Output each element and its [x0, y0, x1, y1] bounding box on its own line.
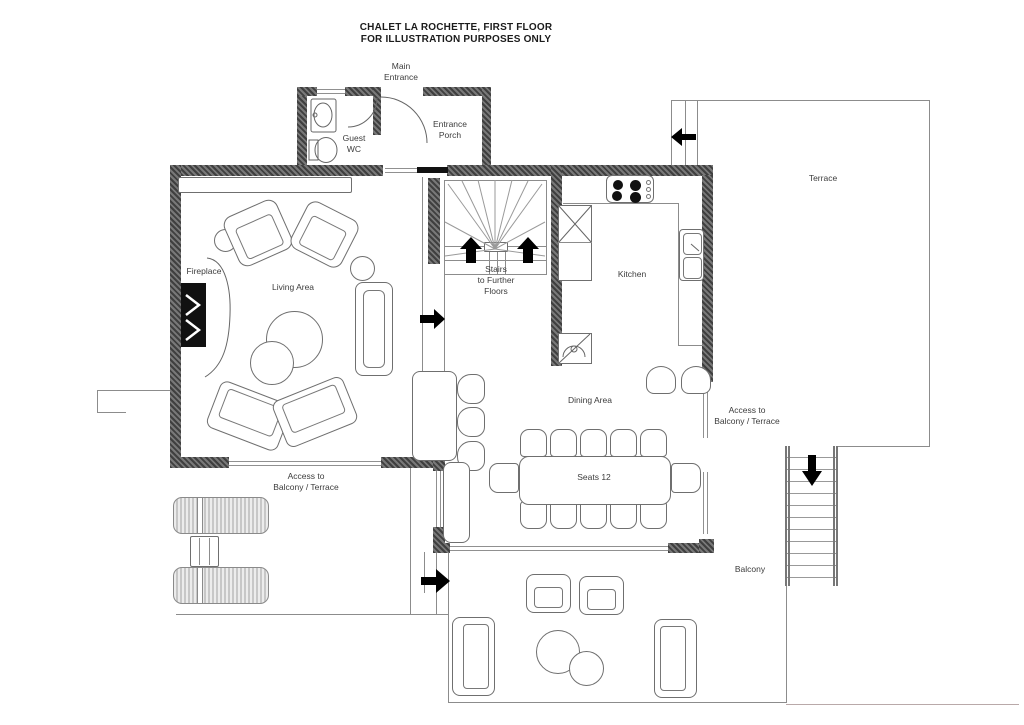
wall-segment	[482, 87, 491, 167]
label-access-balcony-left: Access to Balcony / Terrace	[273, 471, 339, 493]
seat	[234, 213, 284, 260]
dining-chair	[550, 429, 577, 457]
entrance-threshold	[417, 167, 448, 173]
dining-chair	[489, 463, 519, 493]
tub-chair	[457, 374, 485, 404]
label-balcony: Balcony	[735, 564, 765, 575]
window	[229, 461, 381, 466]
vector-overlay	[0, 0, 1024, 725]
wall-segment	[373, 87, 381, 135]
balcony-edge	[97, 412, 126, 413]
balcony-stairs	[785, 446, 838, 586]
seat	[683, 233, 702, 255]
toilet-cistern	[309, 140, 318, 160]
knob	[646, 187, 651, 192]
wall-segment	[345, 87, 375, 96]
passage-line	[697, 100, 698, 166]
label-fireplace: Fireplace	[187, 266, 222, 277]
left-arrow-icon	[671, 128, 696, 146]
balcony-edge	[410, 468, 411, 615]
wall-segment	[433, 543, 450, 553]
window	[317, 89, 345, 94]
seat	[534, 587, 563, 608]
hall-line	[422, 177, 423, 371]
side-table	[350, 256, 375, 281]
label-terrace: Terrace	[809, 173, 837, 184]
balcony-edge	[786, 586, 787, 703]
balcony-edge	[786, 704, 1019, 705]
seat	[363, 290, 385, 368]
seat	[587, 589, 616, 610]
armchair	[221, 197, 296, 270]
sofa	[355, 282, 393, 376]
dining-chair	[520, 501, 547, 529]
dining-chair	[550, 501, 577, 529]
terrace-edge	[671, 100, 930, 101]
label-living-area: Living Area	[272, 282, 314, 293]
floor-plan: CHALET LA ROCHETTE, FIRST FLOOR FOR ILLU…	[0, 0, 1024, 725]
wall-segment	[428, 178, 440, 264]
label-dining-area: Dining Area	[568, 395, 612, 406]
burner	[630, 192, 641, 203]
fireplace	[181, 283, 206, 347]
seat	[281, 384, 346, 434]
label-guest-wc: Guest WC	[343, 133, 366, 155]
sideboard	[443, 462, 470, 543]
wall-segment	[170, 165, 383, 176]
page-subtitle: FOR ILLUSTRATION PURPOSES ONLY	[361, 34, 551, 46]
dining-chair	[520, 429, 547, 457]
wall-segment	[447, 165, 713, 176]
sun-lounger	[173, 497, 269, 534]
label-seats-12: Seats 12	[577, 472, 611, 483]
tub-chair	[457, 407, 485, 437]
label-stairs: Stairs to Further Floors	[478, 264, 515, 297]
fireplace-chevrons	[186, 295, 199, 340]
wall-segment	[297, 87, 307, 165]
tub-chair	[681, 366, 711, 394]
dining-chair	[671, 463, 701, 493]
hall-line	[444, 274, 445, 371]
label-kitchen: Kitchen	[618, 269, 646, 280]
window	[385, 168, 418, 173]
burner	[612, 191, 622, 201]
dining-chair	[610, 501, 637, 529]
hob	[606, 175, 654, 203]
ln	[563, 203, 679, 204]
ln	[678, 345, 704, 346]
tub-chair	[646, 366, 676, 394]
window	[436, 471, 441, 527]
seat	[463, 624, 489, 689]
burner	[613, 180, 623, 190]
wc-basin-bowl	[314, 103, 332, 127]
terrace-edge	[929, 100, 930, 447]
wall-segment	[699, 539, 714, 553]
toilet-bowl	[315, 138, 337, 163]
seat	[660, 626, 686, 691]
main-entrance-door-arc	[381, 97, 427, 143]
wall-segment	[297, 87, 317, 96]
seat	[683, 257, 702, 279]
burner	[630, 180, 641, 191]
passage-line	[671, 100, 672, 166]
balcony-edge	[448, 552, 449, 703]
dining-chair	[610, 429, 637, 457]
seat	[298, 215, 348, 262]
balcony-edge	[97, 390, 171, 391]
balcony-edge	[448, 702, 787, 703]
sofa	[452, 617, 495, 696]
ln	[444, 180, 547, 181]
door-jamb	[424, 552, 425, 593]
dining-chair	[580, 429, 607, 457]
wall-segment	[423, 87, 491, 96]
sun-lounger	[173, 567, 269, 604]
label-entrance-porch: Entrance Porch	[433, 119, 467, 141]
window-bench	[178, 177, 352, 193]
kitchen-sink	[679, 229, 704, 281]
balcony-edge	[97, 390, 98, 413]
door-jamb	[436, 545, 437, 615]
path	[186, 295, 199, 340]
balcony-edge	[176, 614, 449, 615]
right-arrow-icon	[420, 309, 445, 329]
ln	[199, 538, 200, 565]
passage-line	[685, 100, 686, 166]
dining-chair	[580, 501, 607, 529]
bar-counter	[412, 371, 457, 461]
newel-post	[484, 242, 508, 252]
window	[450, 546, 668, 551]
lounger-table	[190, 536, 219, 567]
wall-segment	[170, 165, 181, 468]
armchair	[526, 574, 571, 613]
pouf	[250, 341, 294, 385]
window	[703, 472, 708, 534]
sofa	[270, 375, 359, 450]
wall-segment	[668, 543, 701, 553]
wall-segment	[170, 457, 229, 468]
dining-chair	[640, 429, 667, 457]
tall-cupboard	[558, 205, 592, 281]
armchair	[287, 198, 362, 271]
label-access-balcony-right: Access to Balcony / Terrace	[714, 405, 780, 427]
label-main-entrance: Main Entrance	[384, 61, 418, 83]
wc-basin	[311, 99, 336, 132]
dining-chair	[640, 501, 667, 529]
seat	[218, 388, 283, 438]
wc-tap	[313, 113, 317, 117]
armchair	[579, 576, 624, 615]
page-title: CHALET LA ROCHETTE, FIRST FLOOR	[360, 22, 552, 34]
ln	[444, 260, 547, 261]
sofa	[654, 619, 697, 698]
knob	[646, 180, 651, 185]
ln	[558, 242, 592, 243]
appliance	[558, 333, 592, 364]
knob	[646, 194, 651, 199]
ln	[209, 538, 210, 565]
outdoor-table	[569, 651, 604, 686]
